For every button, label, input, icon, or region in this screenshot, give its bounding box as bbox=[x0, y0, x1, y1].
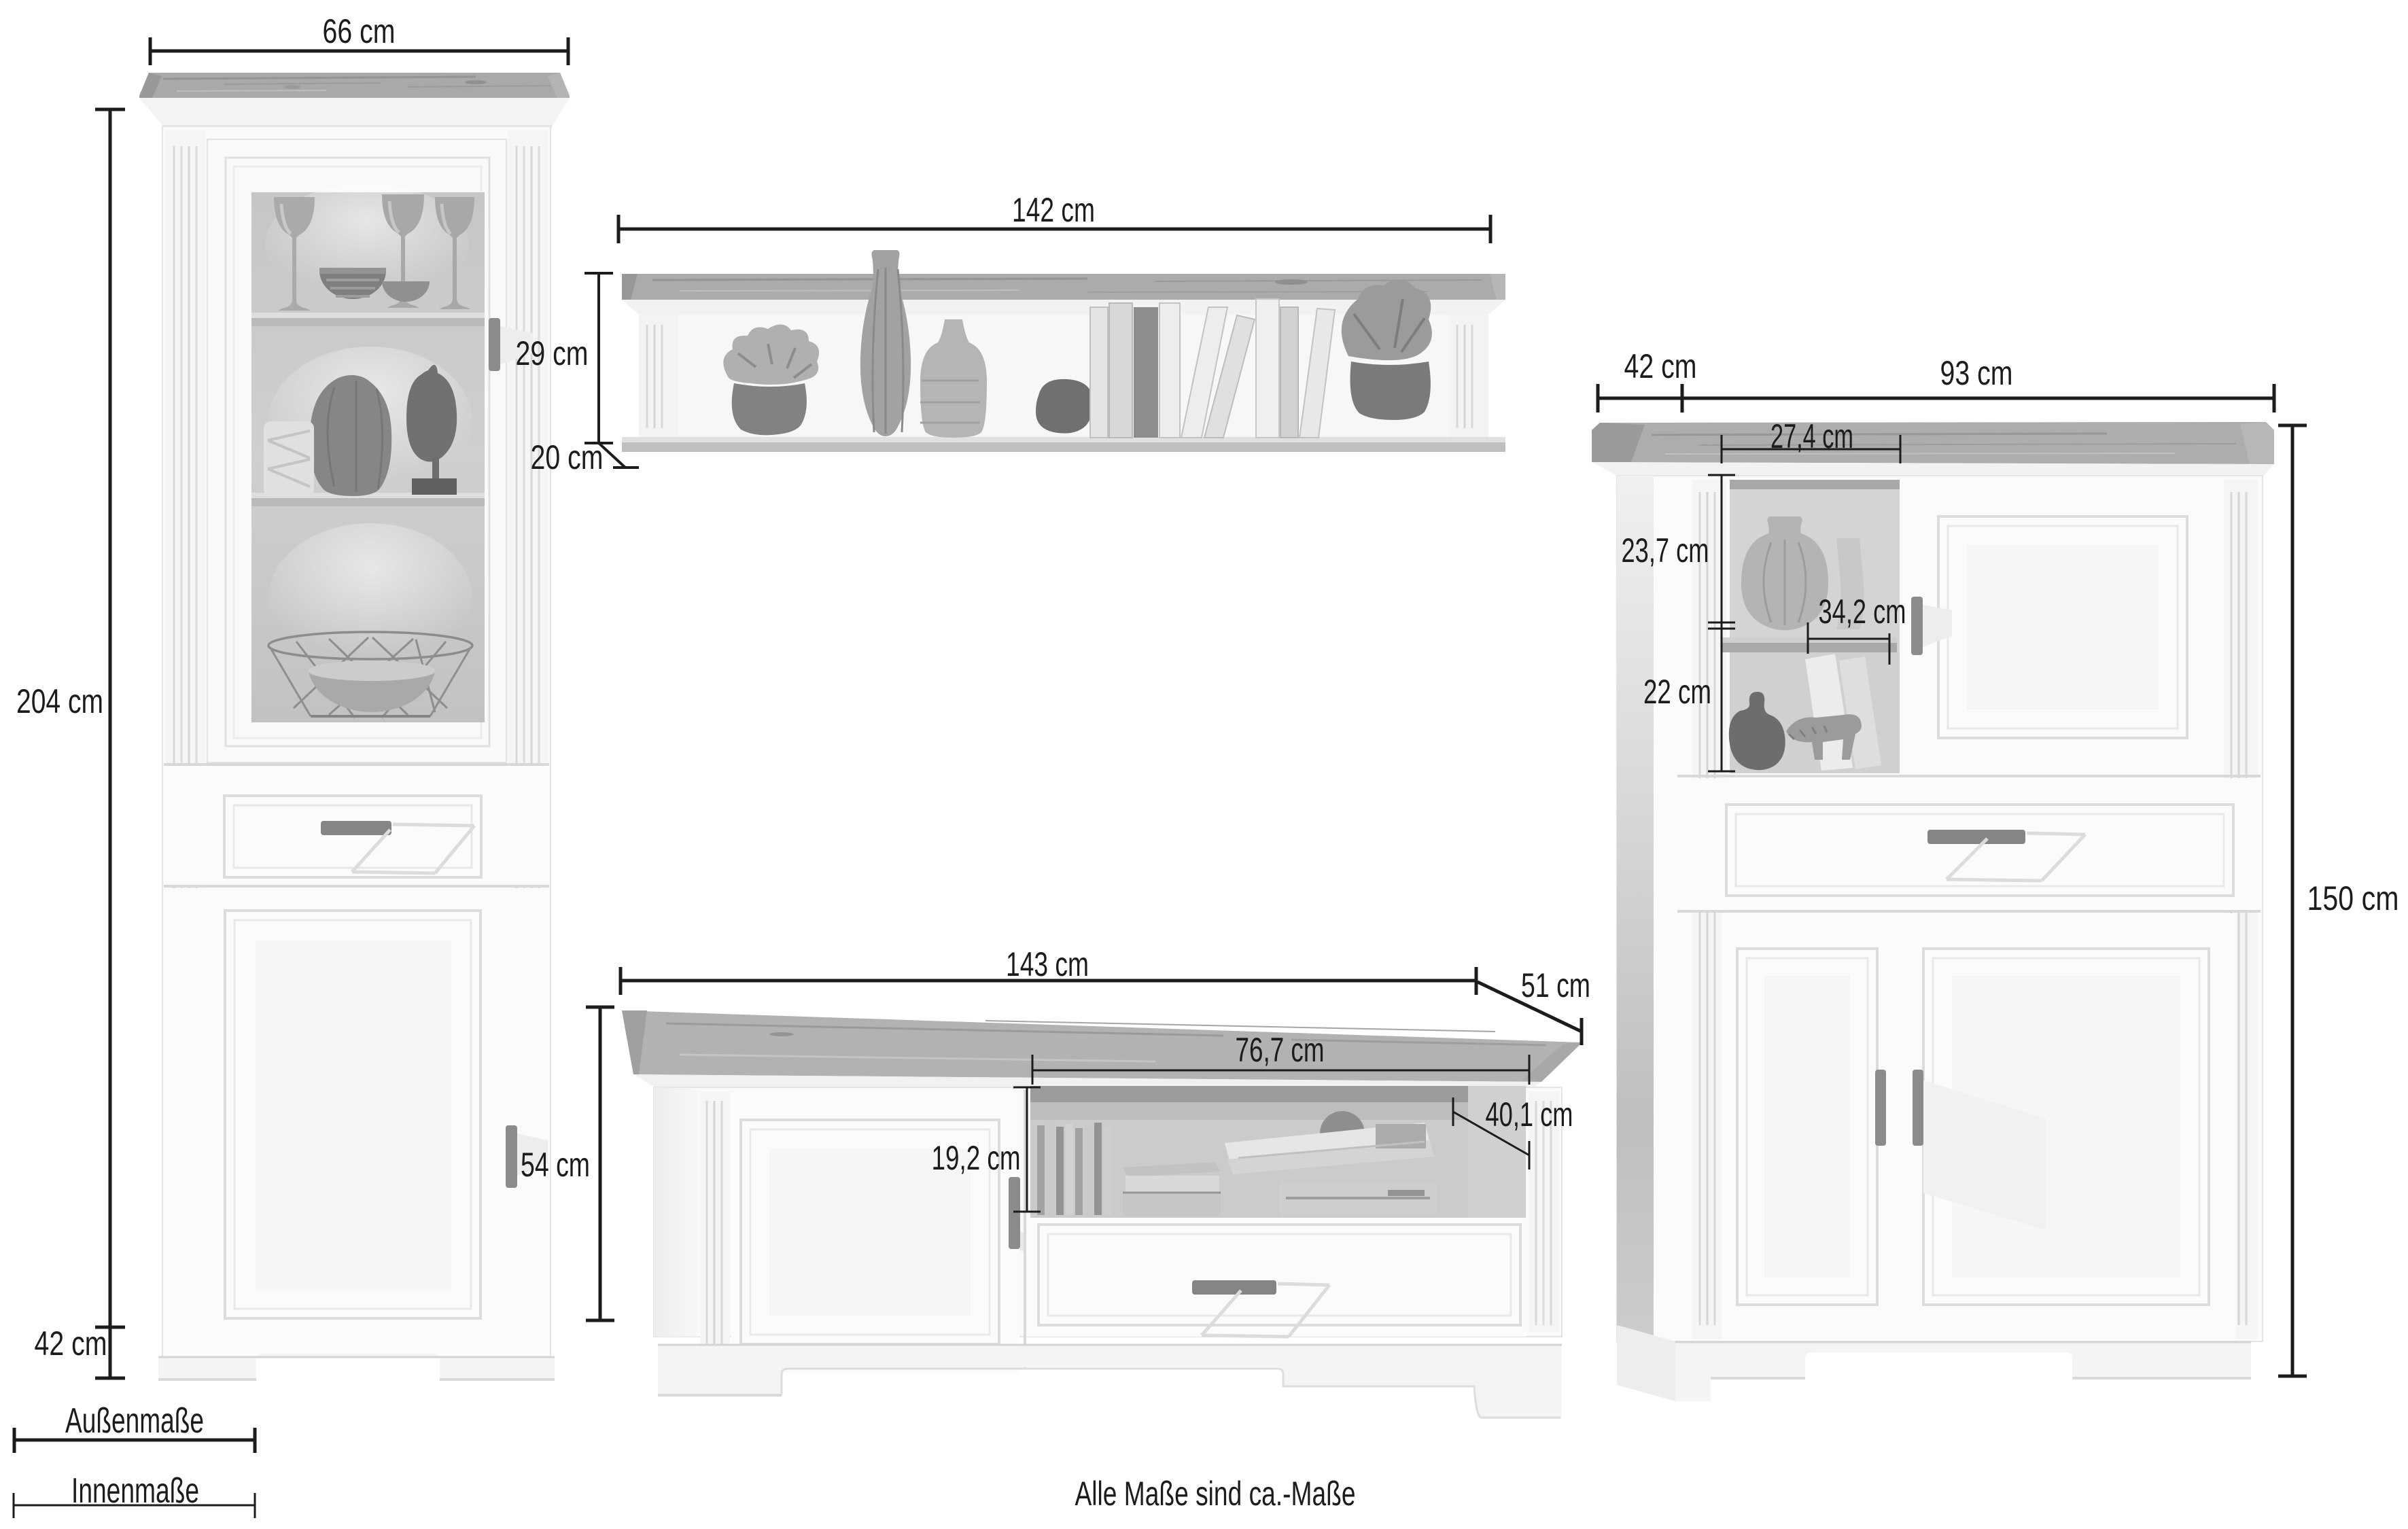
svg-text:20 cm: 20 cm bbox=[531, 438, 604, 476]
svg-text:Alle Maße sind ca.-Maße: Alle Maße sind ca.-Maße bbox=[1075, 1475, 1356, 1513]
svg-text:42 cm: 42 cm bbox=[1624, 347, 1697, 385]
svg-text:19,2 cm: 19,2 cm bbox=[932, 1139, 1021, 1177]
svg-text:Außenmaße: Außenmaße bbox=[65, 1401, 204, 1441]
svg-text:93 cm: 93 cm bbox=[1940, 354, 2013, 392]
svg-text:22 cm: 22 cm bbox=[1643, 673, 1711, 711]
svg-text:51 cm: 51 cm bbox=[1521, 966, 1590, 1004]
svg-text:76,7 cm: 76,7 cm bbox=[1236, 1031, 1325, 1069]
svg-text:54 cm: 54 cm bbox=[521, 1146, 590, 1184]
svg-text:40,1 cm: 40,1 cm bbox=[1486, 1095, 1573, 1133]
svg-text:42 cm: 42 cm bbox=[35, 1324, 107, 1363]
svg-text:150 cm: 150 cm bbox=[2307, 879, 2399, 917]
svg-text:143 cm: 143 cm bbox=[1006, 945, 1089, 983]
svg-text:29 cm: 29 cm bbox=[516, 334, 589, 372]
svg-text:34,2 cm: 34,2 cm bbox=[1819, 593, 1906, 631]
svg-text:27,4 cm: 27,4 cm bbox=[1770, 417, 1853, 455]
svg-text:142 cm: 142 cm bbox=[1012, 191, 1095, 229]
svg-text:66 cm: 66 cm bbox=[323, 12, 396, 50]
svg-text:204 cm: 204 cm bbox=[16, 682, 103, 720]
svg-text:23,7 cm: 23,7 cm bbox=[1622, 531, 1709, 569]
